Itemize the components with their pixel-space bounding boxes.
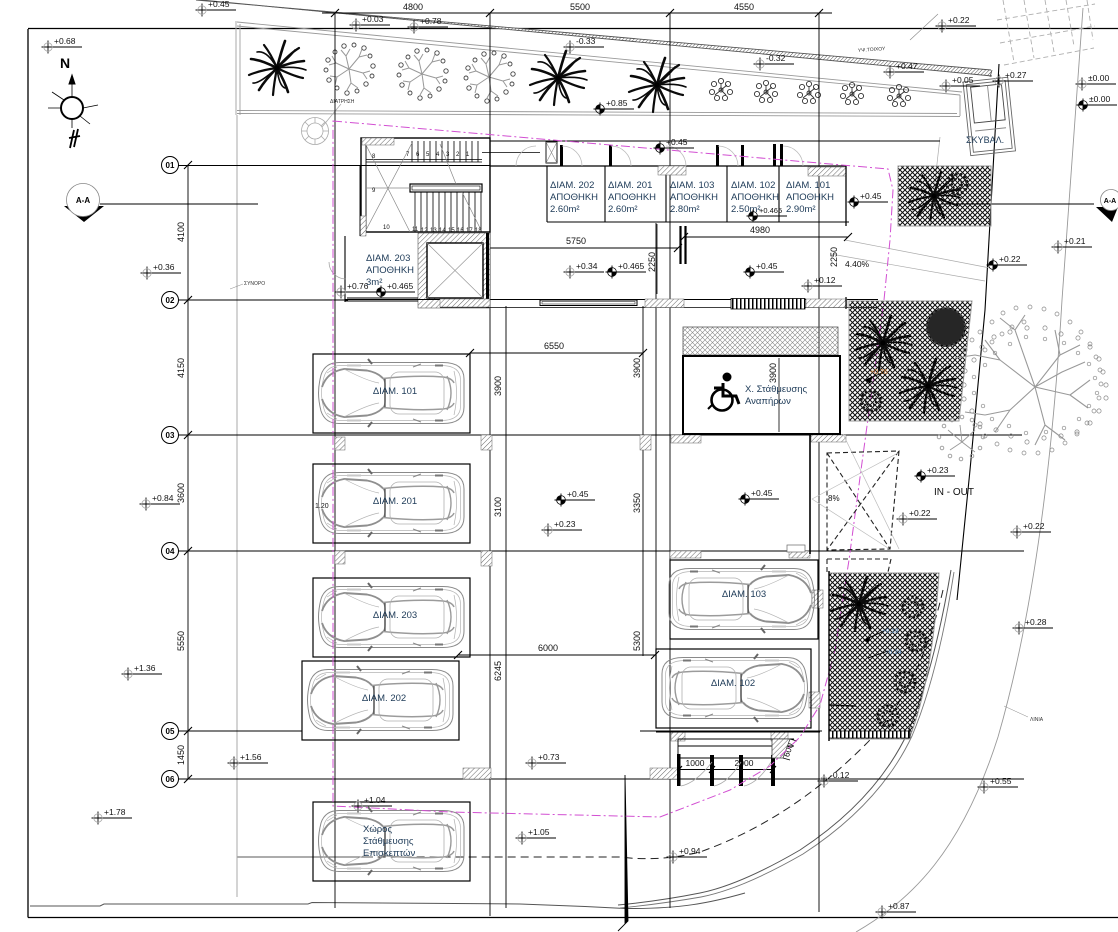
svg-text:1000: 1000 — [686, 758, 705, 768]
svg-text:+0.87: +0.87 — [888, 901, 910, 911]
svg-text:+0.45: +0.45 — [860, 191, 882, 201]
svg-text:ΔΙΑΤΡΗΣΗ: ΔΙΑΤΡΗΣΗ — [330, 99, 355, 105]
svg-text:+0.47: +0.47 — [896, 61, 918, 71]
svg-text:2000: 2000 — [735, 758, 754, 768]
svg-text:3350: 3350 — [632, 493, 642, 513]
svg-text:A-A: A-A — [1104, 198, 1116, 205]
svg-text:+0.36: +0.36 — [153, 262, 175, 272]
svg-text:+0.465: +0.465 — [618, 261, 645, 271]
svg-text:3900: 3900 — [768, 363, 778, 383]
svg-text:+1.04: +1.04 — [364, 795, 386, 805]
svg-text:6550: 6550 — [544, 341, 564, 351]
svg-text:05: 05 — [166, 727, 175, 736]
svg-text:4800: 4800 — [403, 2, 423, 12]
svg-text:+0.76: +0.76 — [347, 281, 369, 291]
svg-text:5500: 5500 — [570, 2, 590, 12]
svg-text:ΣΥΝΟΡΟ: ΣΥΝΟΡΟ — [244, 281, 265, 287]
svg-text:+0.22: +0.22 — [948, 15, 970, 25]
svg-text:01: 01 — [166, 161, 175, 170]
svg-text:+0.465: +0.465 — [759, 206, 782, 215]
svg-text:3900: 3900 — [493, 376, 503, 396]
svg-text:+0.22: +0.22 — [999, 254, 1021, 264]
svg-text:5550: 5550 — [176, 631, 186, 651]
svg-text:±0.00: ±0.00 — [1089, 94, 1110, 104]
svg-text:3600: 3600 — [176, 483, 186, 503]
svg-text:2250: 2250 — [647, 252, 657, 272]
svg-text:ΛΙΝΙΑ: ΛΙΝΙΑ — [1030, 717, 1044, 723]
svg-text:Χώρος: Χώρος — [363, 824, 392, 835]
svg-text:+0.45: +0.45 — [567, 489, 589, 499]
svg-text:Επισκεπτών: Επισκεπτών — [363, 848, 415, 859]
svg-text:+0.73: +0.73 — [538, 752, 560, 762]
svg-text:+1.36: +1.36 — [134, 663, 156, 673]
svg-text:4.40%: 4.40% — [845, 259, 870, 269]
svg-text:5300: 5300 — [632, 631, 642, 651]
svg-text:+0.28: +0.28 — [1025, 617, 1047, 627]
svg-text:+0.19: +0.19 — [882, 628, 899, 635]
svg-text:3900: 3900 — [632, 358, 642, 378]
svg-text:4150: 4150 — [176, 358, 186, 378]
svg-text:ΣΚΥΒΑΛ.: ΣΚΥΒΑΛ. — [966, 135, 1004, 145]
svg-text:+0.94: +0.94 — [679, 846, 701, 856]
svg-text:+0.85: +0.85 — [606, 98, 628, 108]
svg-text:Αναπήρων: Αναπήρων — [745, 396, 791, 407]
svg-text:+0.55: +0.55 — [990, 776, 1012, 786]
svg-text:+0.45: +0.45 — [208, 0, 230, 9]
svg-text:ΑΠΟΘΗΚΗ: ΑΠΟΘΗΚΗ — [608, 192, 656, 203]
svg-text:+0.23: +0.23 — [554, 519, 576, 529]
svg-text:-0.12: -0.12 — [830, 770, 850, 780]
svg-text:ΑΠΟΘΗΚΗ: ΑΠΟΘΗΚΗ — [550, 192, 598, 203]
svg-text:+0.22: +0.22 — [909, 508, 931, 518]
svg-text:ΔΙΑΜ. 201: ΔΙΑΜ. 201 — [373, 496, 417, 507]
svg-text:ΔΙΑΜ. 102: ΔΙΑΜ. 102 — [711, 678, 755, 689]
svg-text:ΔΙΑΜ. 102: ΔΙΑΜ. 102 — [731, 180, 775, 191]
svg-text:ΔΙΑΜ. 101: ΔΙΑΜ. 101 — [786, 180, 830, 191]
svg-text:02: 02 — [166, 296, 175, 305]
svg-text:+0.26: +0.26 — [870, 369, 888, 376]
svg-text:2250: 2250 — [829, 247, 839, 267]
svg-text:+0.23: +0.23 — [927, 465, 949, 475]
svg-text:1450: 1450 — [176, 745, 186, 765]
svg-text:ΔΙΑΜ. 202: ΔΙΑΜ. 202 — [362, 693, 406, 704]
svg-text:A-A: A-A — [76, 196, 90, 205]
svg-text:+0.45: +0.45 — [756, 261, 778, 271]
svg-text:+0.21: +0.21 — [1064, 236, 1086, 246]
svg-text:ΑΠΟΘΗΚΗ: ΑΠΟΘΗΚΗ — [366, 265, 414, 276]
svg-text:Στάθμευσης: Στάθμευσης — [363, 836, 414, 847]
svg-text:ΔΙΑΜ. 101: ΔΙΑΜ. 101 — [373, 386, 417, 397]
svg-text:+0.24: +0.24 — [885, 649, 902, 656]
svg-text:-0.32: -0.32 — [766, 53, 786, 63]
svg-text:+0.45: +0.45 — [666, 137, 688, 147]
svg-text:+0.27: +0.27 — [1005, 70, 1027, 80]
svg-text:+0.34: +0.34 — [576, 261, 598, 271]
svg-text:6000: 6000 — [538, 643, 558, 653]
svg-text:ΔΙΑΜ. 103: ΔΙΑΜ. 103 — [670, 180, 714, 191]
svg-text:2.60m²: 2.60m² — [550, 204, 580, 215]
svg-text:1.20: 1.20 — [315, 503, 329, 510]
svg-text:Χ. Στάθμευσης: Χ. Στάθμευσης — [745, 384, 807, 395]
svg-text:4550: 4550 — [734, 2, 754, 12]
svg-text:+0.12: +0.12 — [814, 275, 836, 285]
svg-text:4980: 4980 — [750, 225, 770, 235]
svg-text:+0.45: +0.45 — [751, 488, 773, 498]
svg-text:ΔΙΑΜ. 203: ΔΙΑΜ. 203 — [373, 610, 417, 621]
svg-text:+0.68: +0.68 — [54, 36, 76, 46]
svg-text:06: 06 — [166, 775, 175, 784]
svg-text:11: 11 — [412, 227, 419, 233]
svg-text:2.90m²: 2.90m² — [786, 204, 816, 215]
svg-text:ΔΙΑΜ. 203: ΔΙΑΜ. 203 — [366, 253, 410, 264]
svg-text:+1.05: +1.05 — [528, 827, 550, 837]
svg-text:ΑΠΟΘΗΚΗ: ΑΠΟΘΗΚΗ — [731, 192, 779, 203]
svg-text:+0.78: +0.78 — [420, 16, 442, 26]
svg-text:03: 03 — [166, 431, 175, 440]
svg-text:ΑΠΟΘΗΚΗ: ΑΠΟΘΗΚΗ — [786, 192, 834, 203]
svg-text:+0.05: +0.05 — [952, 75, 974, 85]
svg-text:4100: 4100 — [176, 222, 186, 242]
svg-text:+1.78: +1.78 — [104, 807, 126, 817]
svg-text:3100: 3100 — [493, 497, 503, 517]
svg-text:ΔΙΑΜ. 201: ΔΙΑΜ. 201 — [608, 180, 652, 191]
svg-text:+1.56: +1.56 — [240, 752, 262, 762]
svg-text:10: 10 — [383, 225, 390, 231]
svg-text:2.60m²: 2.60m² — [608, 204, 638, 215]
svg-text:ΔΙΑΜ. 103: ΔΙΑΜ. 103 — [722, 589, 766, 600]
svg-text:-0.33: -0.33 — [576, 36, 596, 46]
svg-text:N: N — [60, 55, 70, 71]
svg-text:+0.22: +0.22 — [1023, 521, 1045, 531]
svg-text:IN - OUT: IN - OUT — [934, 487, 974, 498]
svg-text:04: 04 — [166, 547, 175, 556]
svg-text:ΑΠΟΘΗΚΗ: ΑΠΟΘΗΚΗ — [670, 192, 718, 203]
svg-text:+0.03: +0.03 — [362, 14, 384, 24]
svg-text:ΔΙΑΜ. 202: ΔΙΑΜ. 202 — [550, 180, 594, 191]
svg-text:+0.84: +0.84 — [152, 493, 174, 503]
svg-text:±0.00: ±0.00 — [1088, 73, 1109, 83]
svg-text:2.80m²: 2.80m² — [670, 204, 700, 215]
svg-text:6245: 6245 — [493, 661, 503, 681]
svg-text:5750: 5750 — [566, 236, 586, 246]
svg-text:+0.465: +0.465 — [387, 281, 414, 291]
svg-text:8%: 8% — [828, 494, 840, 503]
